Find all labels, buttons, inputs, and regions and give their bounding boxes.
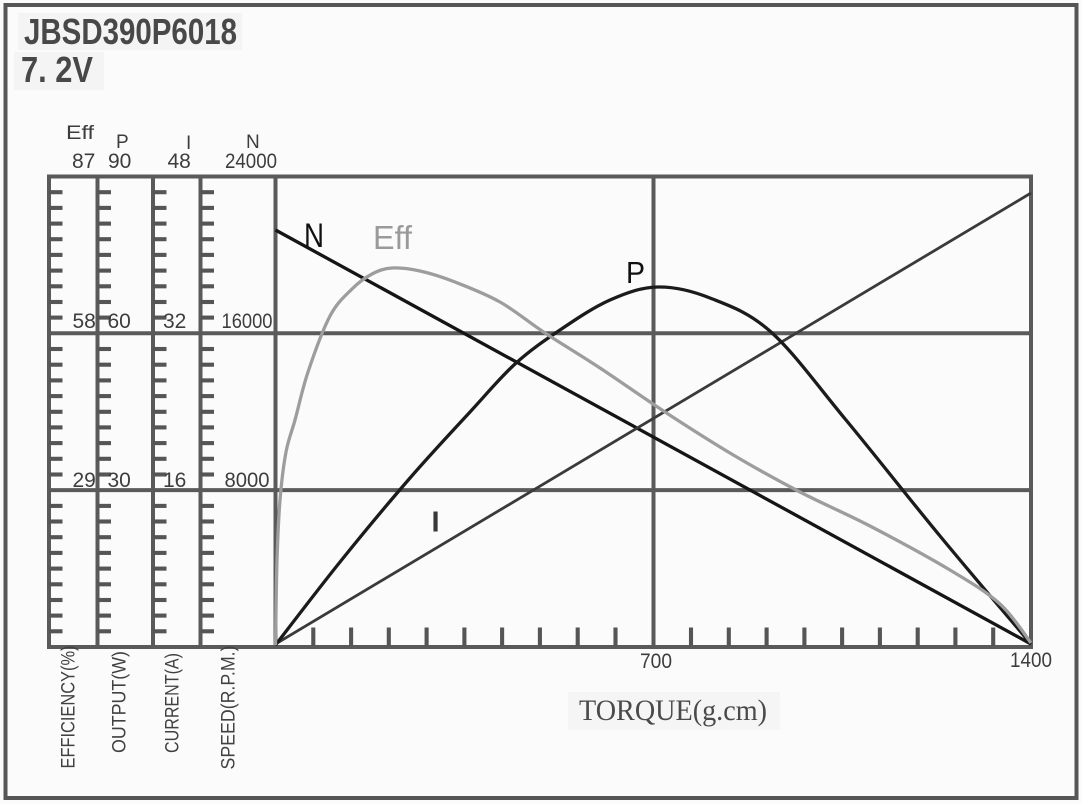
svg-text:N: N	[304, 217, 324, 255]
svg-text:90: 90	[108, 150, 131, 173]
svg-text:58: 58	[73, 310, 96, 333]
svg-text:7. 2V: 7. 2V	[21, 49, 93, 90]
svg-text:24000: 24000	[225, 150, 277, 173]
svg-text:TORQUE(g.cm): TORQUE(g.cm)	[579, 694, 767, 727]
svg-text:CURRENT(A): CURRENT(A)	[163, 653, 184, 753]
svg-text:SPEED(R.P.M.): SPEED(R.P.M.)	[219, 646, 240, 770]
svg-text:Eff: Eff	[66, 123, 95, 144]
svg-text:OUTPUT(W): OUTPUT(W)	[110, 651, 131, 753]
svg-text:P: P	[626, 255, 645, 290]
svg-text:JBSD390P6018: JBSD390P6018	[24, 11, 237, 52]
svg-text:60: 60	[108, 310, 131, 333]
svg-text:I: I	[432, 507, 440, 539]
svg-text:30: 30	[108, 469, 131, 492]
svg-text:32: 32	[163, 310, 186, 333]
svg-text:EFFICIENCY(%): EFFICIENCY(%)	[59, 646, 80, 769]
svg-text:Eff: Eff	[373, 219, 413, 256]
svg-text:1400: 1400	[1010, 649, 1052, 672]
svg-text:29: 29	[73, 469, 96, 492]
svg-text:16: 16	[163, 469, 186, 492]
svg-text:87: 87	[72, 150, 95, 173]
svg-text:8000: 8000	[225, 469, 270, 492]
svg-text:700: 700	[640, 650, 672, 673]
svg-text:16000: 16000	[222, 310, 273, 333]
svg-text:48: 48	[168, 150, 191, 173]
